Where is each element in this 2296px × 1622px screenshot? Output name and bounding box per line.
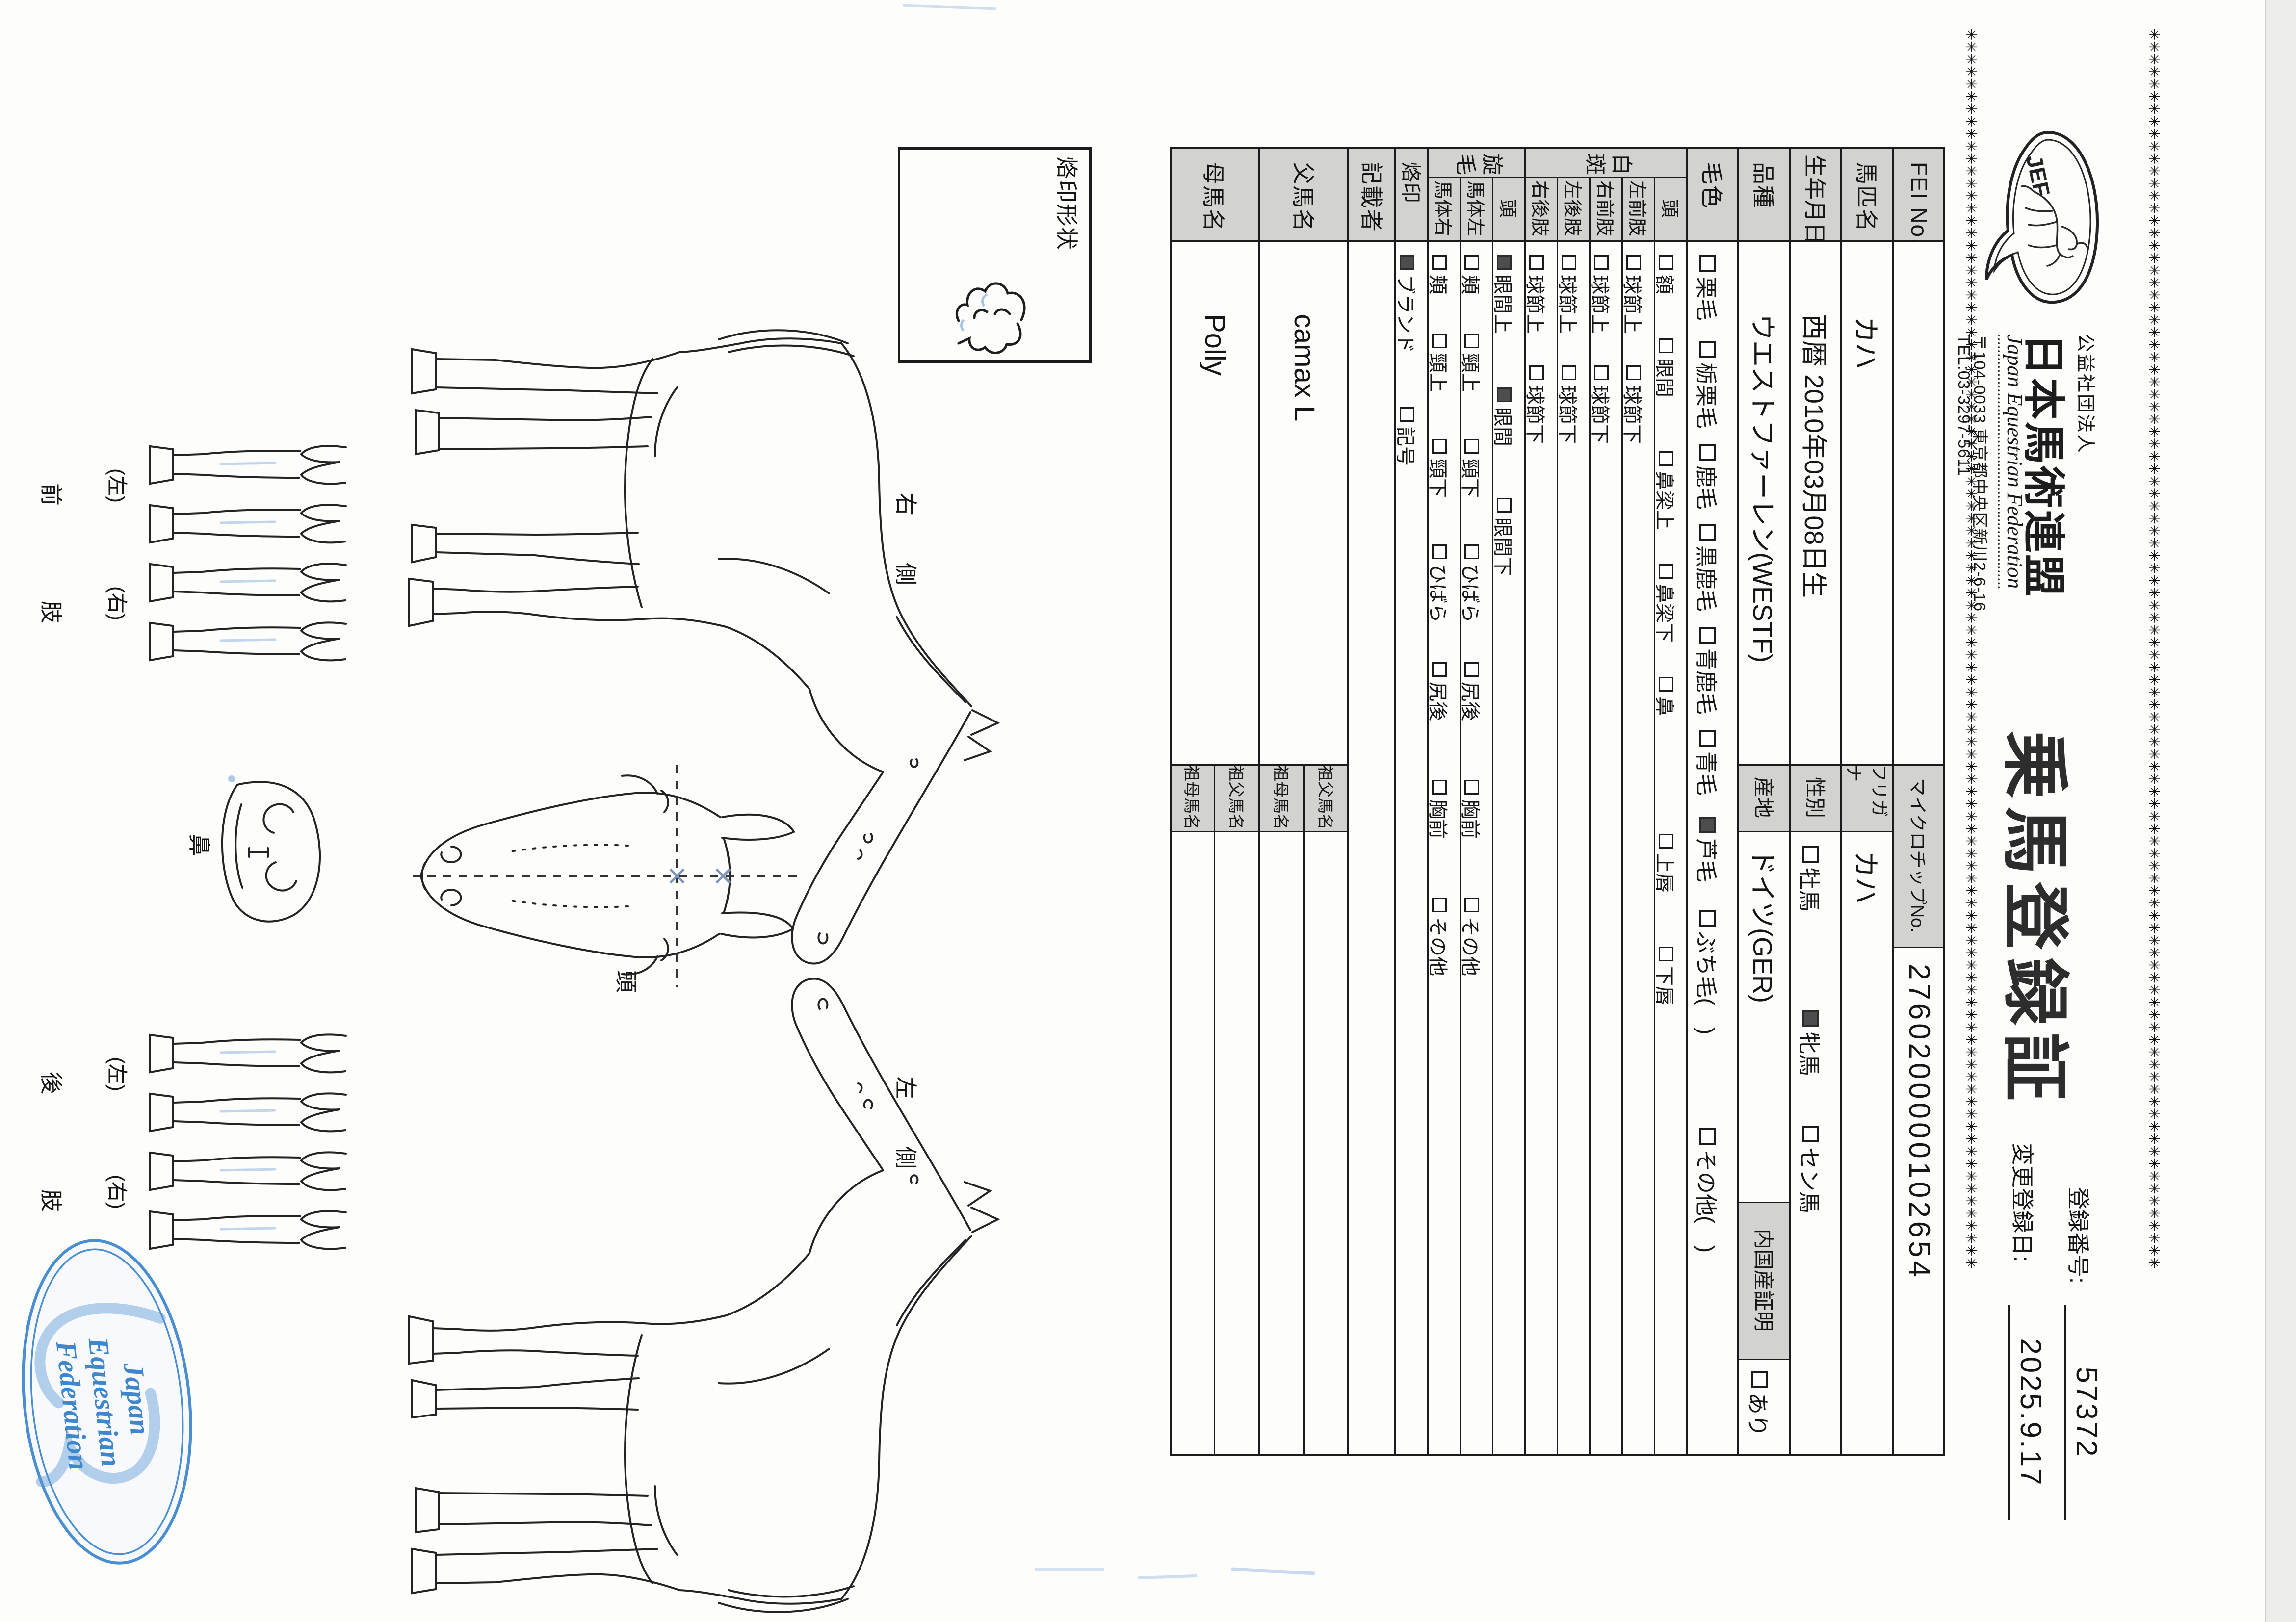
scanned-certificate: ✳✳✳✳✳✳✳✳✳✳✳✳✳✳✳✳✳✳✳✳✳✳✳✳✳✳✳✳✳✳✳✳✳✳✳✳✳✳✳✳… xyxy=(0,0,2296,1622)
horse-diagrams: Japan Equestrian Federation xyxy=(0,0,2296,1622)
federation-stamp: Japan Equestrian Federation xyxy=(8,1232,206,1571)
front-legs-right-drawing xyxy=(150,564,346,660)
right-side-horse-drawing xyxy=(409,330,998,963)
front-legs-left-drawing xyxy=(150,446,346,542)
blue-artifact xyxy=(1035,1568,1104,1571)
hind-legs-right-drawing xyxy=(150,1152,346,1249)
scan-edge-band xyxy=(2265,0,2296,1622)
certificate-page: ✳✳✳✳✳✳✳✳✳✳✳✳✳✳✳✳✳✳✳✳✳✳✳✳✳✳✳✳✳✳✳✳✳✳✳✳✳✳✳✳… xyxy=(0,0,2296,1622)
blue-speck xyxy=(228,775,235,782)
nose-drawing xyxy=(222,782,320,921)
left-side-horse-drawing xyxy=(409,978,998,1612)
hind-legs-left-drawing xyxy=(150,1034,346,1131)
